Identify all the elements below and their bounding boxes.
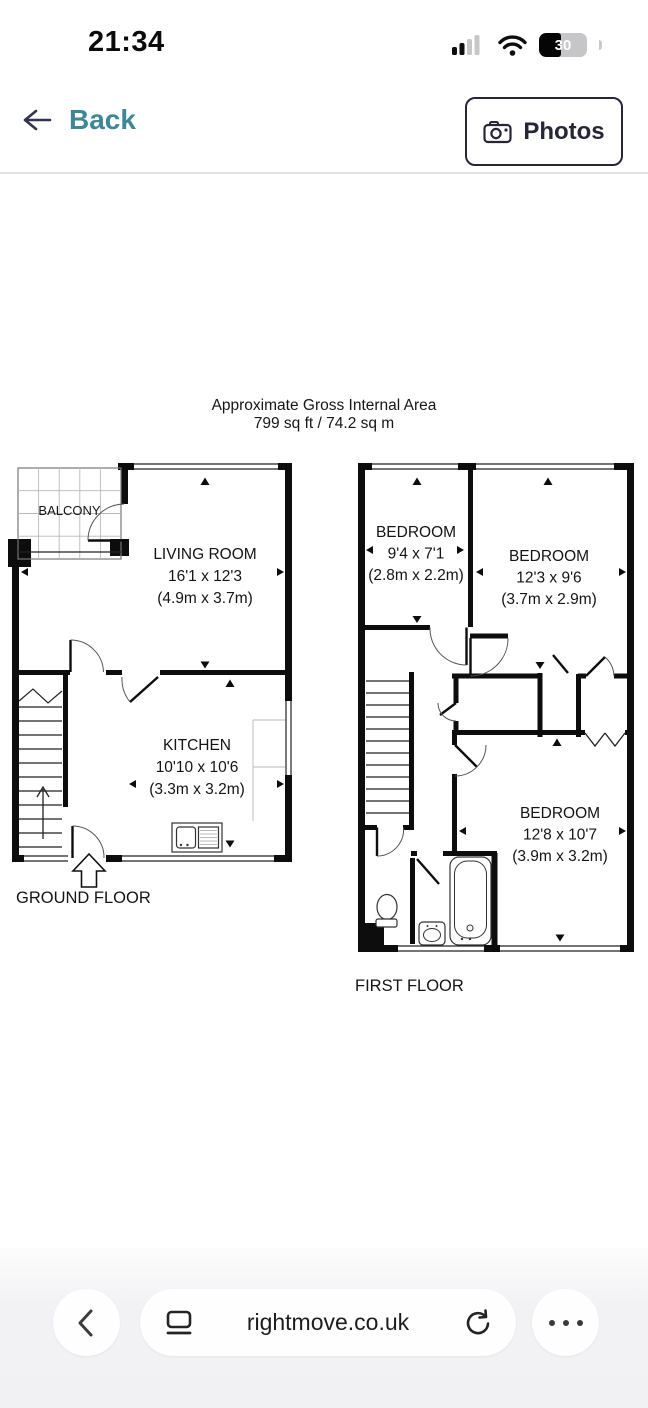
battery-percentage: 30 — [539, 33, 587, 57]
status-icons: 30 — [452, 33, 602, 57]
back-button[interactable]: Back — [22, 104, 136, 136]
kitchen-name: KITCHEN — [163, 737, 231, 754]
bedroom-large-metric: (3.9m x 3.2m) — [512, 848, 608, 865]
ground-floor-label: GROUND FLOOR — [16, 889, 151, 907]
living-room-imperial: 16'1 x 12'3 — [168, 568, 242, 585]
nav-divider — [0, 172, 648, 174]
kitchen-imperial: 10'10 x 10'6 — [156, 759, 239, 776]
bedroom-small-metric: (2.8m x 2.2m) — [368, 567, 464, 584]
status-bar: 21:34 30 — [0, 0, 648, 88]
reader-page-icon — [164, 1309, 194, 1337]
toilet-fixture — [376, 895, 397, 928]
browser-toolbar: rightmove.co.uk — [0, 1248, 648, 1408]
back-arrow-icon — [22, 107, 52, 133]
bedroom-large-name: BEDROOM — [520, 805, 600, 822]
ground-floor-plan: BALCONY LIVING ROOM 16'1 x 12'3 (4.9m x … — [8, 462, 293, 907]
bedroom-right-imperial: 12'3 x 9'6 — [516, 570, 581, 587]
first-floor-label: FIRST FLOOR — [355, 977, 464, 995]
floorplan-image[interactable]: BALCONY LIVING ROOM 16'1 x 12'3 (4.9m x … — [0, 455, 648, 1015]
bedroom-large-imperial: 12'8 x 10'7 — [523, 827, 597, 844]
bedroom-small-name: BEDROOM — [376, 524, 456, 541]
staircase-ground — [19, 689, 62, 847]
first-floor-plan: BEDROOM 9'4 x 7'1 (2.8m x 2.2m) BEDROOM … — [355, 462, 634, 995]
iphone-screen: 21:34 30 Back — [0, 0, 648, 1408]
bedroom-right-name: BEDROOM — [509, 548, 589, 565]
living-room-metric: (4.9m x 3.7m) — [157, 590, 253, 607]
bedroom-small-imperial: 9'4 x 7'1 — [388, 546, 445, 563]
bedroom-right-metric: (3.7m x 2.9m) — [501, 591, 597, 608]
gross-internal-area-value: 799 sq ft / 74.2 sq m — [0, 415, 648, 433]
browser-more-button[interactable] — [532, 1289, 599, 1356]
bathtub-fixture — [450, 857, 491, 945]
camera-icon — [483, 120, 512, 144]
floorplan-title: Approximate Gross Internal Area 799 sq f… — [0, 397, 648, 433]
url-text: rightmove.co.uk — [194, 1309, 462, 1336]
photos-label: Photos — [523, 118, 604, 146]
balcony-label: BALCONY — [38, 503, 100, 518]
address-bar[interactable]: rightmove.co.uk — [140, 1289, 516, 1356]
app-nav-bar: Back Photos — [0, 88, 648, 172]
browser-back-button[interactable] — [53, 1289, 120, 1356]
staircase-first — [366, 681, 409, 813]
status-time: 21:34 — [88, 26, 165, 59]
reload-icon[interactable] — [462, 1308, 492, 1338]
gross-internal-area-label: Approximate Gross Internal Area — [0, 397, 648, 415]
kitchen-metric: (3.3m x 3.2m) — [149, 781, 245, 798]
photos-button[interactable]: Photos — [465, 97, 623, 166]
living-room-name: LIVING ROOM — [153, 546, 256, 563]
basin-fixture — [419, 922, 445, 945]
signal-strength-icon — [452, 33, 486, 57]
battery-icon: 30 — [539, 33, 587, 57]
kitchen-sink-fixture — [172, 823, 222, 852]
wifi-icon — [497, 34, 528, 57]
back-label: Back — [69, 104, 136, 136]
ellipsis-icon — [549, 1320, 583, 1326]
battery-nub — [599, 40, 602, 50]
chevron-left-icon — [74, 1307, 100, 1339]
